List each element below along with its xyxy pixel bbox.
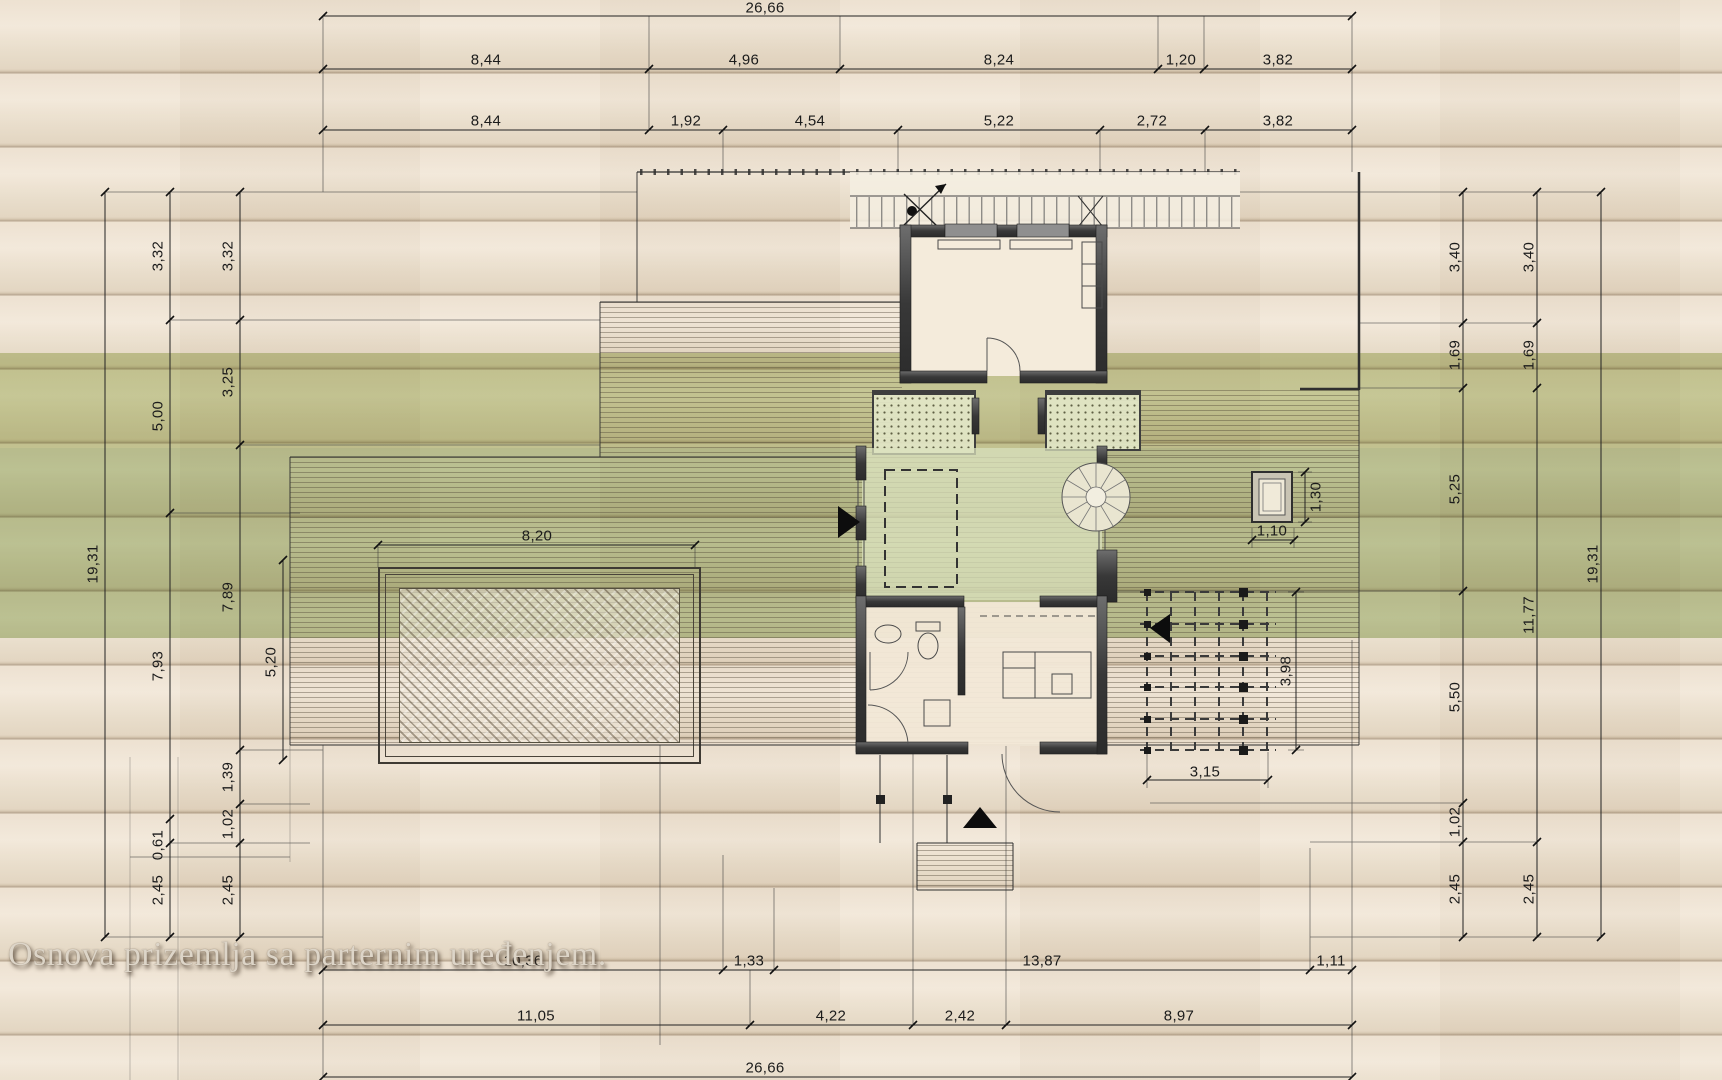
dimension-label: 5,00 [150, 401, 167, 431]
dimension-label: 8,44 [471, 52, 501, 69]
dimension-label: 3,25 [220, 367, 237, 397]
dimension-label: 1,39 [220, 762, 237, 792]
dimension-label: 5,20 [263, 647, 280, 677]
dimension-label: 19,31 [1585, 544, 1602, 583]
dimension-label: 0,61 [150, 830, 167, 860]
dimension-label: 11,05 [517, 1008, 555, 1025]
dimension-label: 3,98 [1278, 656, 1295, 686]
dimension-label: 3,15 [1190, 764, 1220, 781]
dimension-label: 26,66 [745, 0, 784, 17]
window-slab [1017, 224, 1069, 237]
site-boundaries [290, 172, 1359, 890]
spiral-stair [1062, 463, 1130, 531]
dimension-label: 2,72 [1137, 113, 1167, 130]
dimension-label: 4,96 [729, 52, 759, 69]
dimension-label: 3,40 [1447, 242, 1464, 272]
dimension-label: 1,69 [1521, 340, 1538, 370]
dimension-label: 19,31 [85, 544, 102, 583]
dimension-label: 3,40 [1521, 242, 1538, 272]
dimension-label: 2,45 [1447, 874, 1464, 904]
dimension-label: 1,30 [1308, 482, 1325, 512]
dimension-label: 3,82 [1263, 52, 1293, 69]
dimension-label: 2,42 [945, 1008, 975, 1025]
dimension-label: 1,20 [1166, 52, 1196, 69]
dimension-label: 7,93 [150, 651, 167, 681]
dimension-label: 5,25 [1447, 474, 1464, 504]
window-slab [945, 224, 997, 237]
entry-door-arc [1002, 754, 1060, 812]
dimension-label: 7,89 [220, 582, 237, 612]
dimension-label: 1,69 [1447, 340, 1464, 370]
floor-plan-sheet: 26,668,444,968,241,203,828,441,924,545,2… [0, 0, 1722, 1080]
dimension-label: 26,66 [745, 1060, 784, 1077]
dimension-label: 1,02 [220, 809, 237, 839]
entry-arrow-east [1150, 614, 1170, 643]
dimension-label: 8,44 [471, 113, 501, 130]
dimension-label: 2,45 [1521, 874, 1538, 904]
dimension-label: 1,92 [671, 113, 701, 130]
dimension-label: 1,02 [1447, 807, 1464, 837]
dimension-label: 11,77 [1521, 596, 1538, 634]
skylight-box [1252, 472, 1292, 522]
dimension-label: 1,33 [734, 953, 764, 970]
entry-arrow-south [963, 807, 997, 828]
dimension-label: 5,50 [1447, 682, 1464, 712]
dimension-label: 13,87 [1022, 953, 1061, 970]
dimension-label: 3,32 [150, 241, 167, 271]
dimension-label: 3,82 [1263, 113, 1293, 130]
dimension-label: 4,22 [816, 1008, 846, 1025]
dimension-label: 8,24 [984, 52, 1014, 69]
dimension-label: 8,20 [522, 528, 552, 545]
dimension-label: 1,11 [1316, 953, 1345, 970]
dimension-label: 3,32 [220, 241, 237, 271]
dimension-label: 2,45 [220, 875, 237, 905]
dimension-label: 2,45 [150, 875, 167, 905]
pergola [1140, 588, 1276, 755]
plan-linework [0, 0, 1722, 1080]
dimension-label: 8,97 [1164, 1008, 1194, 1025]
dimension-label: 1,10 [1257, 523, 1287, 540]
dimension-label: 4,54 [795, 113, 825, 130]
drawing-title: Osnova prizemlja sa parternim uređenjem. [8, 936, 607, 974]
dimension-label: 5,22 [984, 113, 1014, 130]
